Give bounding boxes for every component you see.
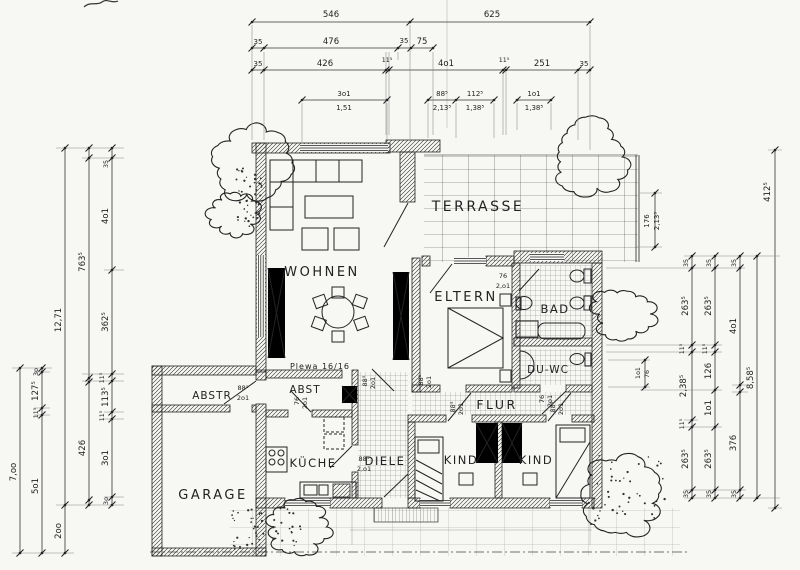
door-dim: 88⁵	[449, 401, 457, 412]
room-label-wohnen: WOHNEN	[284, 265, 360, 280]
door-dim: 2o1	[237, 394, 249, 402]
room-label-kueche: KÜCHE	[289, 454, 336, 470]
door-dim: 2o1	[369, 377, 377, 389]
room-label-abstr: ABSTR	[192, 390, 232, 402]
wall-eltern-south	[466, 385, 512, 392]
armchair	[334, 228, 359, 250]
dim-label: 1o1	[704, 400, 714, 416]
floor-plan-drawing: WOHNEN TERRASSE ELTERN BAD DU-WC FLUR DI…	[0, 0, 800, 570]
door-dim: 88⁵	[238, 384, 249, 392]
dim-label: 1,38⁵	[466, 104, 485, 112]
dim-label: 376	[729, 435, 739, 451]
chimney	[342, 386, 357, 403]
window-kind1-south	[420, 499, 450, 507]
dim-label: 476	[323, 37, 339, 47]
dim-label: 2oo	[54, 523, 64, 539]
room-label-flur: FLUR	[476, 397, 517, 412]
dim-label: 35	[254, 60, 263, 68]
door-dim: 76	[538, 395, 546, 403]
handwritten-mark	[84, 1, 118, 7]
dim-label: 251	[534, 59, 550, 69]
wall-garage-west	[152, 366, 162, 556]
dim-label: 263⁵	[681, 449, 691, 469]
door-dim: 2,o1	[496, 282, 510, 290]
dim-label: 11⁵	[33, 407, 40, 418]
table	[523, 473, 537, 485]
wall-abstr-south	[152, 405, 230, 412]
dim-label: 11⁵	[679, 418, 686, 429]
radiator	[268, 268, 285, 358]
floor-plan-scan: WOHNEN TERRASSE ELTERN BAD DU-WC FLUR DI…	[0, 0, 800, 570]
door-eltern-terrasse	[430, 264, 452, 293]
dim-label: 11⁵	[499, 57, 510, 64]
dim-label: 75	[417, 37, 428, 47]
dim-label: 35	[254, 38, 263, 46]
armchair	[302, 228, 328, 250]
window-kind2-south	[550, 499, 582, 507]
dim-label: 426	[317, 59, 333, 69]
dim-label: 35	[731, 490, 738, 498]
dim-label: 11⁵	[99, 372, 106, 383]
dim-label: 4o1	[729, 318, 739, 334]
dining-group	[311, 287, 368, 342]
window-eltern-north	[454, 257, 486, 265]
dim-label: 11⁵	[679, 343, 686, 354]
dim-label: 5o1	[31, 478, 41, 494]
wall-t-pier-bar	[386, 140, 440, 152]
nightstand	[500, 294, 511, 306]
nightstand	[500, 370, 511, 382]
window-bad-north	[530, 253, 564, 261]
dim-label: 8,58⁵	[746, 367, 756, 389]
door-dim: 2o1	[457, 403, 465, 415]
room-label-abst: ABST	[289, 384, 320, 396]
dim-label: 112⁵	[467, 90, 483, 98]
kind1-furniture	[415, 437, 473, 501]
dim-label: 362⁵	[101, 312, 111, 332]
dim-label: 35	[683, 259, 690, 267]
dim-label: 126	[704, 363, 714, 379]
door-dim: 88⁵	[417, 374, 425, 385]
dim-label: 35	[683, 490, 690, 498]
dim-label: 625	[484, 10, 500, 20]
dim-label: 4o1	[101, 208, 111, 224]
dim-label: 4o1	[438, 59, 454, 69]
dim-label: 11⁵	[702, 343, 709, 354]
wall-eltern-north	[486, 256, 514, 266]
stove	[266, 447, 287, 472]
room-label-bad: BAD	[540, 302, 569, 316]
dim-label: 1o1	[527, 90, 540, 98]
wall-wohnen-eltern	[412, 258, 420, 392]
wall-duwc-south	[566, 385, 592, 392]
dim-label: 3o1	[337, 90, 350, 98]
dim-label: 3o	[103, 497, 110, 505]
dim-label: 426	[78, 440, 88, 456]
dim-label: 263⁵	[681, 296, 691, 316]
wall-kind1-west	[408, 422, 415, 498]
room-label-eltern: ELTERN	[434, 290, 498, 305]
radiator	[393, 272, 409, 360]
window-wohnen-north	[300, 144, 388, 152]
room-label-kind2: KIND	[519, 453, 553, 467]
door-dim: 76	[499, 272, 507, 280]
dim-label: 1o1	[635, 367, 642, 379]
dim-label: 12,71	[54, 308, 64, 332]
coffee-table	[305, 196, 353, 218]
dim-label: 35	[706, 490, 713, 498]
dim-label: 2,38⁵	[679, 375, 689, 397]
wall-garage-house	[256, 404, 266, 556]
dim-label: 3o1	[101, 450, 111, 466]
room-label-duwc: DU-WC	[527, 364, 569, 376]
dim-label: 76	[644, 370, 651, 378]
eltern-furniture	[448, 294, 511, 382]
double-bed	[448, 308, 503, 368]
bush-left	[205, 192, 261, 238]
appliance	[324, 434, 344, 449]
dim-label: 35	[580, 60, 589, 68]
dim-label: 263⁵	[704, 296, 714, 316]
wall-wohnen-south	[266, 370, 342, 378]
labels: WOHNEN TERRASSE ELTERN BAD DU-WC FLUR DI…	[9, 10, 773, 539]
dim-label: 35	[731, 259, 738, 267]
dim-label: 3o	[33, 368, 40, 376]
dim-label: 35	[706, 259, 713, 267]
door-dim: 2o1	[425, 376, 433, 388]
wall-t-pier-stem	[400, 152, 415, 202]
door-dim: 88⁵	[361, 375, 369, 386]
door-dim: 2,o1	[357, 465, 371, 473]
dim-label: 1,51	[336, 104, 352, 112]
door-dim: 2o1	[546, 395, 554, 407]
wall-garage-north	[152, 366, 256, 375]
wardrobe	[476, 423, 498, 463]
dim-label: 412⁵	[763, 182, 773, 202]
dim-label: 11⁵	[382, 57, 393, 64]
dim-label: 127⁵	[31, 381, 41, 401]
door-wohnen-terrasse	[384, 203, 408, 247]
wall-abst-kueche	[312, 410, 352, 417]
dim-label: 1,38⁵	[525, 104, 544, 112]
wall-south	[330, 498, 382, 508]
door-dim: 88⁵	[359, 455, 370, 463]
door-dim: 76	[293, 397, 301, 405]
dim-label: 763⁵	[78, 252, 88, 272]
appliance	[324, 417, 344, 432]
dim-label: 35	[103, 160, 110, 168]
entry-steps	[374, 508, 438, 522]
door-dim: 2o1	[557, 403, 565, 415]
wall-garage-south	[152, 548, 266, 556]
door-dim: 2o1	[301, 397, 309, 409]
dim-label: 88⁵	[436, 90, 448, 98]
tree-top-left	[211, 123, 294, 201]
room-label-terrasse: TERRASSE	[431, 199, 524, 215]
window-wohnen-west	[257, 255, 265, 337]
dim-label: 35	[400, 37, 409, 45]
wall-kueche-diele	[352, 370, 358, 445]
wall-flur-south	[472, 415, 546, 422]
dim-label: 263⁵	[704, 449, 714, 469]
dim-label: 2,13⁵	[433, 104, 452, 112]
dim-label: 11⁵	[99, 410, 106, 421]
table	[459, 473, 473, 485]
room-label-kind1: KIND	[444, 453, 478, 467]
dim-label: 546	[323, 10, 339, 20]
dim-label: 2,13⁵	[653, 212, 661, 231]
dim-label: 176	[643, 214, 651, 228]
chimney-label: Plewa 16/16	[290, 362, 350, 371]
room-label-garage: GARAGE	[178, 488, 247, 503]
dim-label: 7,oo	[9, 463, 19, 482]
dim-label: 113⁵	[101, 387, 111, 407]
sofa-group	[270, 160, 362, 250]
kitchen-sink	[304, 485, 317, 495]
